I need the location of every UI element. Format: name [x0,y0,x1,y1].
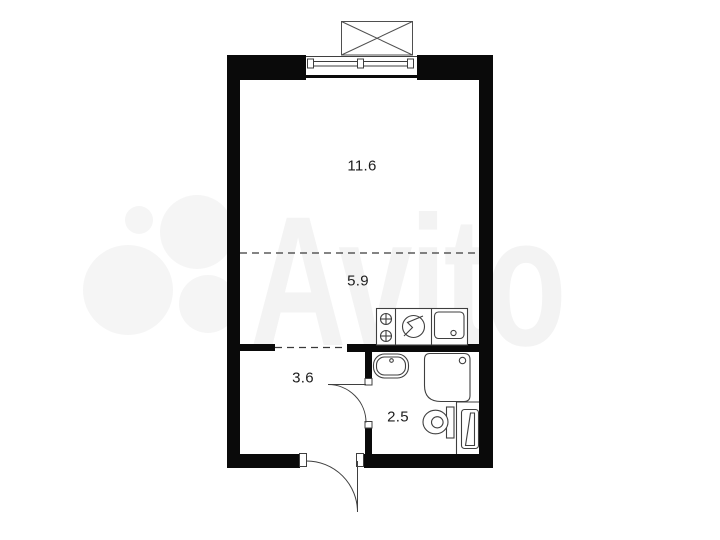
wall-bathroom-left-b [365,427,372,454]
room-area-label-hallway: 3.6 [292,370,314,387]
floorplan-drawing [0,0,720,540]
toilet-icon [423,407,454,438]
wall-hall-stub [240,344,275,351]
wall-left [227,55,240,468]
room-area-label-kitchen: 5.9 [347,273,369,290]
wall-top-left [227,55,306,80]
entrance-door-arc-icon [300,454,364,513]
room-area-label-bathroom: 2.5 [387,409,409,426]
door-swing-arc [328,385,366,423]
floorplan-image: Avito [0,0,720,540]
balcony-box-icon [342,22,413,56]
window-sill [306,75,417,78]
water-heater-icon [457,402,480,454]
kitchen-block [377,309,468,346]
wall-bathroom-left-a [365,352,372,379]
room-area-label-living: 11.6 [347,158,376,175]
washbasin-icon [374,354,409,378]
door-jamb [365,379,372,386]
door-jamb [300,454,307,467]
wall-bottom-left [227,454,300,468]
kitchen-sink-icon [435,312,465,339]
wall-right [479,55,493,468]
shower-icon [425,354,471,402]
bathroom-fixtures [374,354,480,455]
walls [227,55,493,468]
bathroom-door-arc-icon [328,379,372,429]
wall-bottom-right [364,454,493,468]
window-icon [306,57,417,79]
door-swing-arc [307,461,358,512]
